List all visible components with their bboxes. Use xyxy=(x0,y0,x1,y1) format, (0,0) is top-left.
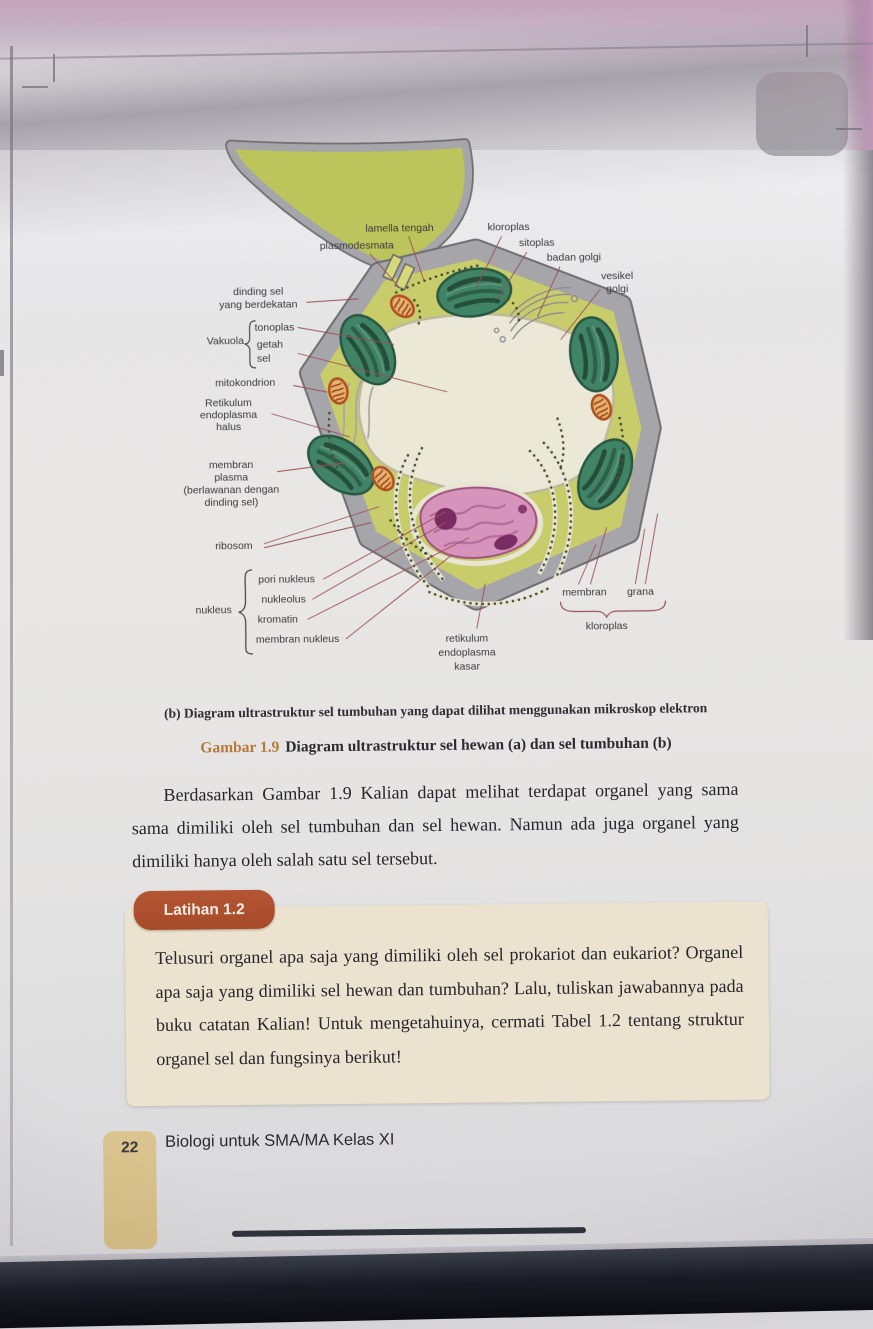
plant-cell-diagram: lamella tengahplasmodesmatakloroplassito… xyxy=(155,127,721,703)
diagram-label-plasmodesmata: plasmodesmata xyxy=(320,239,394,252)
diagram-label-getah-sel: getahsel xyxy=(257,339,284,365)
nukleus-brace xyxy=(238,570,253,654)
diagram-label-mitokondrion: mitokondrion xyxy=(215,377,275,390)
body-paragraph: Berdasarkan Gambar 1.9 Kalian dapat meli… xyxy=(131,773,739,878)
diagram-label-membran-kloroplas: membran xyxy=(562,586,607,598)
diagram-label-sitoplas: sitoplas xyxy=(519,237,555,249)
diagram-label-retikulum-endoplasma-kasar: retikulumendoplasmakasar xyxy=(438,632,496,673)
diagram-label-nukleolus: nukleolus xyxy=(261,593,305,605)
diagram-label-vesikel-golgi: vesikelgolgi xyxy=(601,270,633,295)
diagram-label-pori-nukleus: pori nukleus xyxy=(258,573,315,586)
kloroplas-under-brace xyxy=(560,601,665,618)
book-title: Biologi untuk SMA/MA Kelas XI xyxy=(165,1130,394,1151)
diagram-label-kloroplas-atas: kloroplas xyxy=(487,221,529,233)
diagram-label-dinding-sel-yang-berdekatan: dinding selyang berdekatan xyxy=(219,285,298,311)
exercise-text: Telusuri organel apa saja yang dimiliki … xyxy=(155,936,744,1076)
page-number: 22 xyxy=(121,1139,139,1249)
diagram-label-membran-plasma: membranplasma(berlawanan dengandinding s… xyxy=(183,459,279,510)
tablet-photo: { "figure": { "panel_caption": "(b) Diag… xyxy=(0,0,873,1301)
exercise-box: Latihan 1.2 Telusuri organel apa saja ya… xyxy=(125,902,770,1107)
diagram-label-membran-nukleus: membran nukleus xyxy=(256,633,340,646)
diagram-label-grana: grana xyxy=(627,586,654,598)
leader-line-grana xyxy=(645,514,659,584)
diagram-label-retikulum-endoplasma-halus: Retikulumendoplasmahalus xyxy=(200,397,258,434)
exercise-badge: Latihan 1.2 xyxy=(134,890,275,930)
diagram-label-vakuola: Vakuola xyxy=(207,335,244,347)
book-page: lamella tengahplasmodesmatakloroplassito… xyxy=(0,0,873,1306)
diagram-label-kloroplas-bawah: kloroplas xyxy=(586,620,628,632)
panel-caption: (b) Diagram ultrastruktur sel tumbuhan y… xyxy=(81,699,791,722)
page-number-tab: 22 xyxy=(103,1131,157,1250)
figure-caption: Gambar 1.9Diagram ultrastruktur sel hewa… xyxy=(81,733,791,758)
figure-caption-text: Diagram ultrastruktur sel hewan (a) dan … xyxy=(285,735,672,756)
diagram-label-nukleus: nukleus xyxy=(196,604,232,616)
figure-label: Gambar 1.9 xyxy=(200,739,279,757)
nucleus xyxy=(420,487,537,559)
diagram-label-ribosom: ribosom xyxy=(215,540,253,552)
diagram-label-lamella-tengah: lamella tengah xyxy=(365,222,434,235)
diagram-label-kromatin: kromatin xyxy=(258,613,299,625)
diagram-label-tonoplas: tonoplas xyxy=(255,321,295,333)
diagram-label-badan-golgi: badan golgi xyxy=(547,251,601,264)
